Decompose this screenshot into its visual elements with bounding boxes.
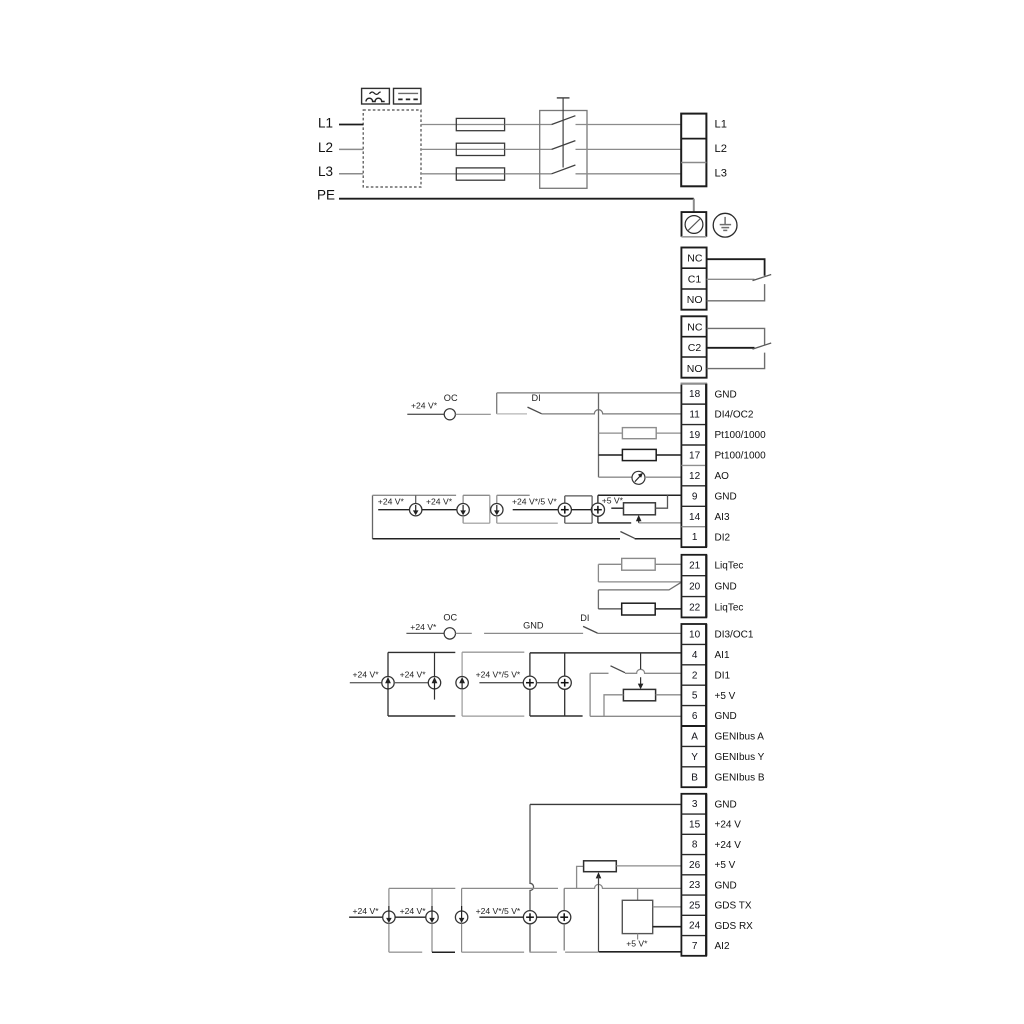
svg-text:AI2: AI2 <box>715 941 730 952</box>
svg-text:15: 15 <box>689 819 701 830</box>
svg-text:L2: L2 <box>318 140 333 155</box>
svg-text:C2: C2 <box>688 342 702 354</box>
svg-text:+5 V: +5 V <box>715 860 736 871</box>
svg-text:6: 6 <box>692 711 698 722</box>
svg-text:19: 19 <box>689 430 701 441</box>
svg-text:+5 V*: +5 V* <box>602 495 624 505</box>
svg-text:GND: GND <box>715 711 737 722</box>
svg-text:23: 23 <box>689 880 701 891</box>
svg-text:+24 V*: +24 V* <box>353 906 380 916</box>
svg-text:C1: C1 <box>688 273 702 285</box>
svg-text:L1: L1 <box>318 116 333 131</box>
svg-text:+24 V*/5 V*: +24 V*/5 V* <box>476 906 521 916</box>
svg-text:OC: OC <box>443 612 457 622</box>
svg-text:Pt100/1000: Pt100/1000 <box>715 430 767 441</box>
svg-text:Y: Y <box>691 752 698 763</box>
svg-text:AI1: AI1 <box>715 650 730 661</box>
svg-text:GND: GND <box>715 389 737 400</box>
svg-text:GENIbus B: GENIbus B <box>715 772 765 783</box>
svg-text:+24 V*: +24 V* <box>400 906 427 916</box>
svg-text:DI4/OC2: DI4/OC2 <box>715 410 754 421</box>
svg-text:NO: NO <box>687 294 703 306</box>
svg-text:GND: GND <box>715 582 737 593</box>
svg-text:+24 V: +24 V <box>715 840 742 851</box>
svg-text:DI2: DI2 <box>715 532 731 543</box>
svg-text:14: 14 <box>689 512 701 523</box>
svg-text:4: 4 <box>692 650 698 661</box>
svg-text:GENIbus A: GENIbus A <box>715 732 765 743</box>
svg-text:21: 21 <box>689 561 701 572</box>
svg-text:A: A <box>691 732 698 743</box>
svg-text:+24 V*: +24 V* <box>410 622 437 632</box>
svg-text:9: 9 <box>692 491 698 502</box>
svg-text:+5 V*: +5 V* <box>626 939 648 949</box>
svg-text:+24 V*: +24 V* <box>426 497 453 507</box>
svg-text:GND: GND <box>715 491 737 502</box>
svg-text:L3: L3 <box>715 168 727 180</box>
svg-text:AO: AO <box>715 471 730 482</box>
svg-text:LiqTec: LiqTec <box>715 561 744 572</box>
svg-text:Pt100/1000: Pt100/1000 <box>715 451 767 462</box>
svg-text:NC: NC <box>687 321 703 333</box>
svg-text:3: 3 <box>692 799 698 810</box>
svg-text:8: 8 <box>692 840 698 851</box>
svg-text:+24 V*: +24 V* <box>411 400 438 410</box>
svg-text:10: 10 <box>689 630 701 641</box>
svg-text:GDS TX: GDS TX <box>715 901 752 912</box>
svg-text:24: 24 <box>689 921 701 932</box>
svg-text:11: 11 <box>689 410 700 421</box>
svg-text:26: 26 <box>689 860 701 871</box>
svg-text:DI: DI <box>532 393 541 403</box>
svg-text:5: 5 <box>692 691 698 702</box>
svg-text:GND: GND <box>523 621 544 631</box>
svg-text:12: 12 <box>689 471 701 482</box>
svg-text:PE: PE <box>317 188 335 203</box>
svg-text:GENIbus Y: GENIbus Y <box>715 752 765 763</box>
svg-text:NC: NC <box>687 253 703 265</box>
svg-text:L2: L2 <box>715 143 727 155</box>
svg-text:+5 V: +5 V <box>715 691 736 702</box>
svg-text:+24 V: +24 V <box>715 820 742 831</box>
svg-text:GND: GND <box>715 799 737 810</box>
svg-text:25: 25 <box>689 900 701 911</box>
svg-text:DI3/OC1: DI3/OC1 <box>715 630 754 641</box>
svg-text:+24 V*: +24 V* <box>400 669 427 679</box>
svg-text:18: 18 <box>689 389 701 400</box>
svg-text:+24 V*/5 V*: +24 V*/5 V* <box>476 669 521 679</box>
svg-text:DI: DI <box>580 613 589 623</box>
svg-text:22: 22 <box>689 602 701 613</box>
svg-text:GDS RX: GDS RX <box>715 921 754 932</box>
svg-text:+24 V*/5 V*: +24 V*/5 V* <box>512 497 557 507</box>
svg-text:L1: L1 <box>715 119 727 131</box>
svg-text:DI1: DI1 <box>715 670 731 681</box>
svg-text:7: 7 <box>692 941 698 952</box>
svg-text:+24 V*: +24 V* <box>378 497 405 507</box>
svg-text:+24 V*: +24 V* <box>353 669 380 679</box>
svg-text:L3: L3 <box>318 164 333 179</box>
svg-text:OC: OC <box>444 393 458 403</box>
svg-text:20: 20 <box>689 581 701 592</box>
svg-text:2: 2 <box>692 670 698 681</box>
svg-text:GND: GND <box>715 880 737 891</box>
svg-text:B: B <box>691 772 698 783</box>
svg-text:17: 17 <box>689 451 701 462</box>
svg-text:LiqTec: LiqTec <box>715 602 744 613</box>
svg-text:AI3: AI3 <box>715 512 730 523</box>
svg-text:1: 1 <box>692 532 698 543</box>
svg-text:NO: NO <box>687 363 703 375</box>
